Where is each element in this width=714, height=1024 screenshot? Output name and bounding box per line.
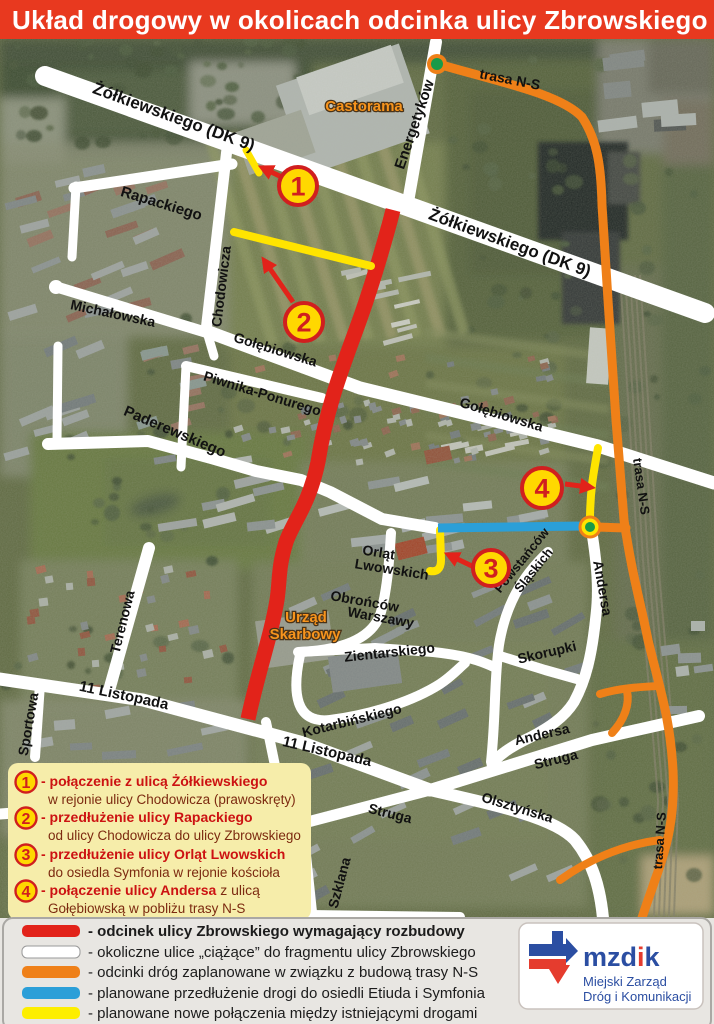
svg-text:Castorama: Castorama xyxy=(325,98,403,115)
svg-text:4: 4 xyxy=(22,884,31,901)
svg-text:1: 1 xyxy=(290,172,305,202)
svg-text:- okoliczne ulice „ciążące” do: - okoliczne ulice „ciążące” do fragmentu… xyxy=(88,944,476,961)
svg-text:Miejski Zarząd: Miejski Zarząd xyxy=(583,974,667,989)
svg-text:3: 3 xyxy=(22,847,31,864)
svg-text:- przedłużenie ulicy Orląt Lwo: - przedłużenie ulicy Orląt Lwowskich xyxy=(41,846,285,862)
svg-text:- planowane przedłużenie drogi: - planowane przedłużenie drogi do osiedl… xyxy=(88,985,486,1002)
svg-text:Układ drogowy w okolicach odci: Układ drogowy w okolicach odcinka ulicy … xyxy=(12,5,708,35)
svg-text:Skarbowy: Skarbowy xyxy=(270,626,342,643)
svg-text:3: 3 xyxy=(483,554,498,584)
svg-text:- odcinki dróg zaplanowane w z: - odcinki dróg zaplanowane w związku z b… xyxy=(88,964,478,981)
svg-text:2: 2 xyxy=(22,811,31,828)
svg-text:od ulicy Chodowicza do ulicy Z: od ulicy Chodowicza do ulicy Zbrowskiego xyxy=(48,828,301,843)
svg-text:- przedłużenie ulicy Rapackieg: - przedłużenie ulicy Rapackiego xyxy=(41,809,253,825)
svg-text:- odcinek ulicy Zbrowskiego wy: - odcinek ulicy Zbrowskiego wymagający r… xyxy=(88,923,465,940)
svg-text:2: 2 xyxy=(296,308,311,338)
svg-text:- połączenie ulicy Andersa z u: - połączenie ulicy Andersa z ulicą xyxy=(41,882,260,898)
svg-text:1: 1 xyxy=(22,775,31,792)
svg-text:- połączenie z ulicą Żółkiewsk: - połączenie z ulicą Żółkiewskiego xyxy=(41,773,267,789)
svg-text:4: 4 xyxy=(534,474,549,504)
svg-text:Gołębiowską w pobliżu trasy N-: Gołębiowską w pobliżu trasy N-S xyxy=(48,901,245,916)
svg-text:mzdik: mzdik xyxy=(583,942,661,972)
svg-text:Dróg i Komunikacji: Dróg i Komunikacji xyxy=(583,989,691,1004)
svg-text:do osiedla Symfonia w rejonie: do osiedla Symfonia w rejonie kościoła xyxy=(48,865,280,880)
svg-text:w rejonie ulicy Chodowicza (pr: w rejonie ulicy Chodowicza (prawoskręty) xyxy=(47,792,296,807)
svg-text:- planowane nowe połączenia mi: - planowane nowe połączenia między istni… xyxy=(88,1005,477,1022)
svg-text:Urząd: Urząd xyxy=(285,609,327,626)
